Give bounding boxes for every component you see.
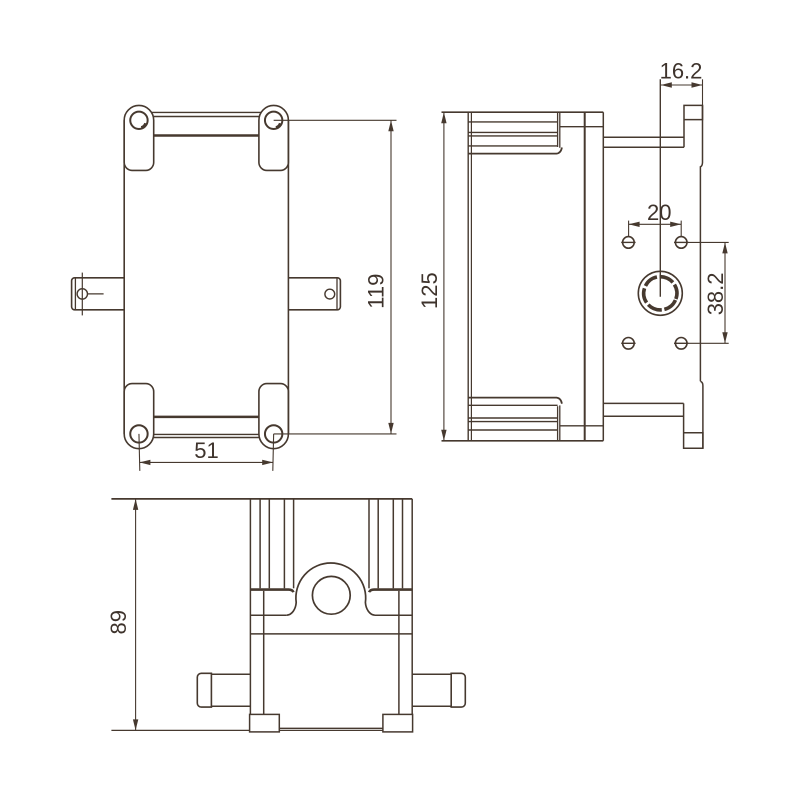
svg-text:16.2: 16.2 — [660, 59, 703, 84]
svg-text:38.2: 38.2 — [703, 272, 728, 315]
svg-text:89: 89 — [106, 610, 131, 634]
svg-text:125: 125 — [417, 272, 442, 309]
svg-text:20: 20 — [647, 200, 671, 225]
svg-text:51: 51 — [194, 438, 218, 463]
svg-text:119: 119 — [363, 274, 388, 309]
